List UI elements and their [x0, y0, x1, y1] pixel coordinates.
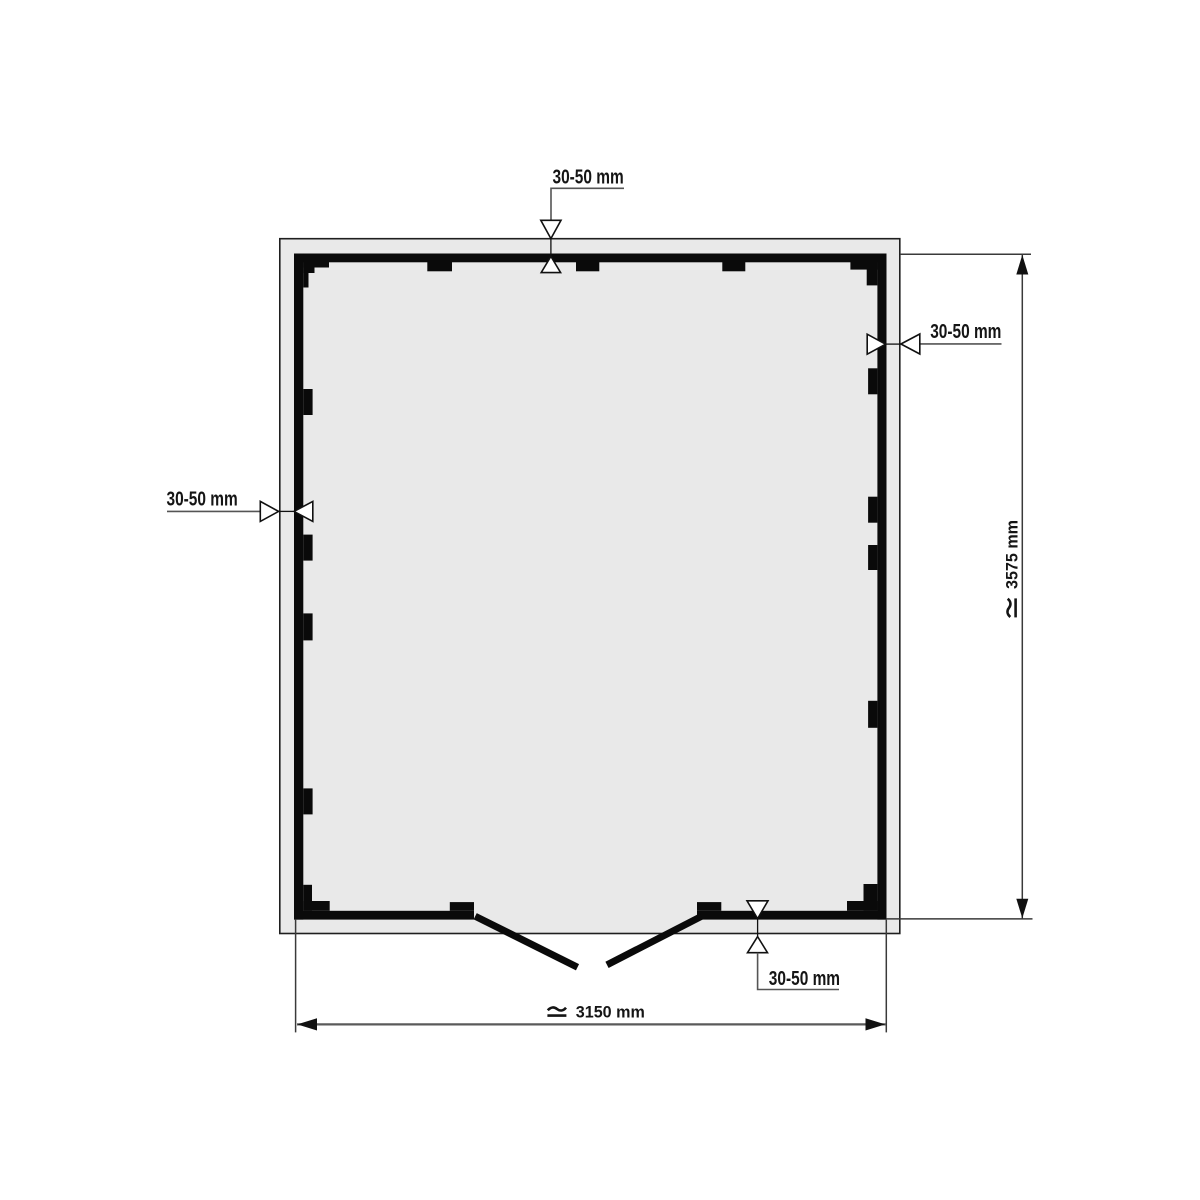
svg-text:3150 mm: 3150 mm — [576, 1003, 645, 1021]
svg-text:30-50 mm: 30-50 mm — [769, 967, 840, 989]
svg-text:3575 mm: 3575 mm — [1003, 520, 1021, 589]
svg-text:30-50 mm: 30-50 mm — [553, 166, 624, 188]
svg-text:30-50 mm: 30-50 mm — [930, 320, 1001, 342]
svg-text:30-50 mm: 30-50 mm — [167, 487, 238, 509]
